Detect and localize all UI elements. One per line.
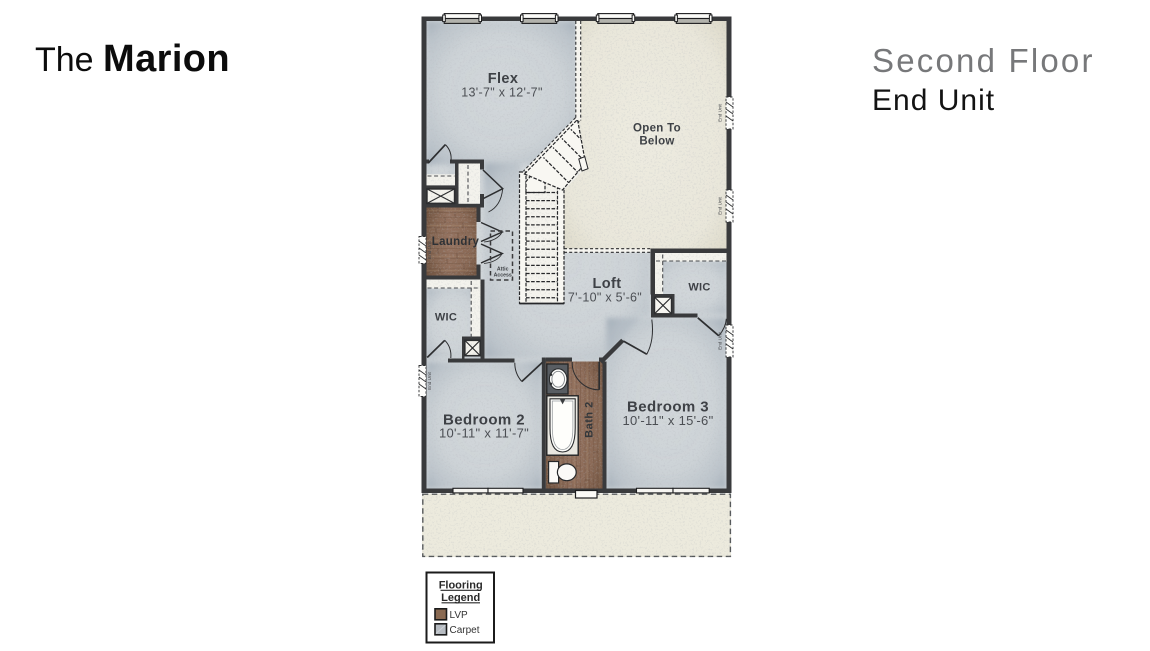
svg-text:End Unit: End Unit bbox=[718, 103, 723, 121]
svg-text:End Unit: End Unit bbox=[718, 196, 723, 214]
svg-text:End Unit: End Unit bbox=[718, 331, 723, 349]
svg-text:WIC: WIC bbox=[688, 282, 710, 294]
svg-text:Flooring: Flooring bbox=[439, 580, 483, 592]
svg-text:WIC: WIC bbox=[435, 312, 457, 324]
svg-text:Carpet: Carpet bbox=[450, 625, 480, 636]
svg-text:Open To: Open To bbox=[633, 123, 681, 135]
svg-text:End Unit: End Unit bbox=[427, 371, 432, 389]
svg-text:Legend: Legend bbox=[441, 592, 480, 604]
svg-text:End Unit: End Unit bbox=[872, 84, 995, 117]
svg-text:Bath 2: Bath 2 bbox=[584, 401, 596, 438]
svg-text:10'-11" x 15'-6": 10'-11" x 15'-6" bbox=[622, 413, 713, 428]
svg-text:13'-7" x 12'-7": 13'-7" x 12'-7" bbox=[461, 86, 542, 100]
svg-text:10'-11" x 11'-7": 10'-11" x 11'-7" bbox=[439, 426, 529, 441]
svg-text:Second Floor: Second Floor bbox=[872, 42, 1095, 79]
svg-text:End Unit: End Unit bbox=[427, 240, 432, 258]
svg-text:The Marion: The Marion bbox=[35, 38, 230, 80]
svg-text:Attic: Attic bbox=[497, 267, 509, 273]
svg-text:LVP: LVP bbox=[450, 610, 468, 621]
svg-text:7'-10" x 5'-6": 7'-10" x 5'-6" bbox=[568, 291, 642, 305]
svg-text:Access: Access bbox=[494, 273, 512, 279]
svg-text:Below: Below bbox=[639, 136, 674, 148]
svg-text:Laundry: Laundry bbox=[432, 236, 480, 248]
